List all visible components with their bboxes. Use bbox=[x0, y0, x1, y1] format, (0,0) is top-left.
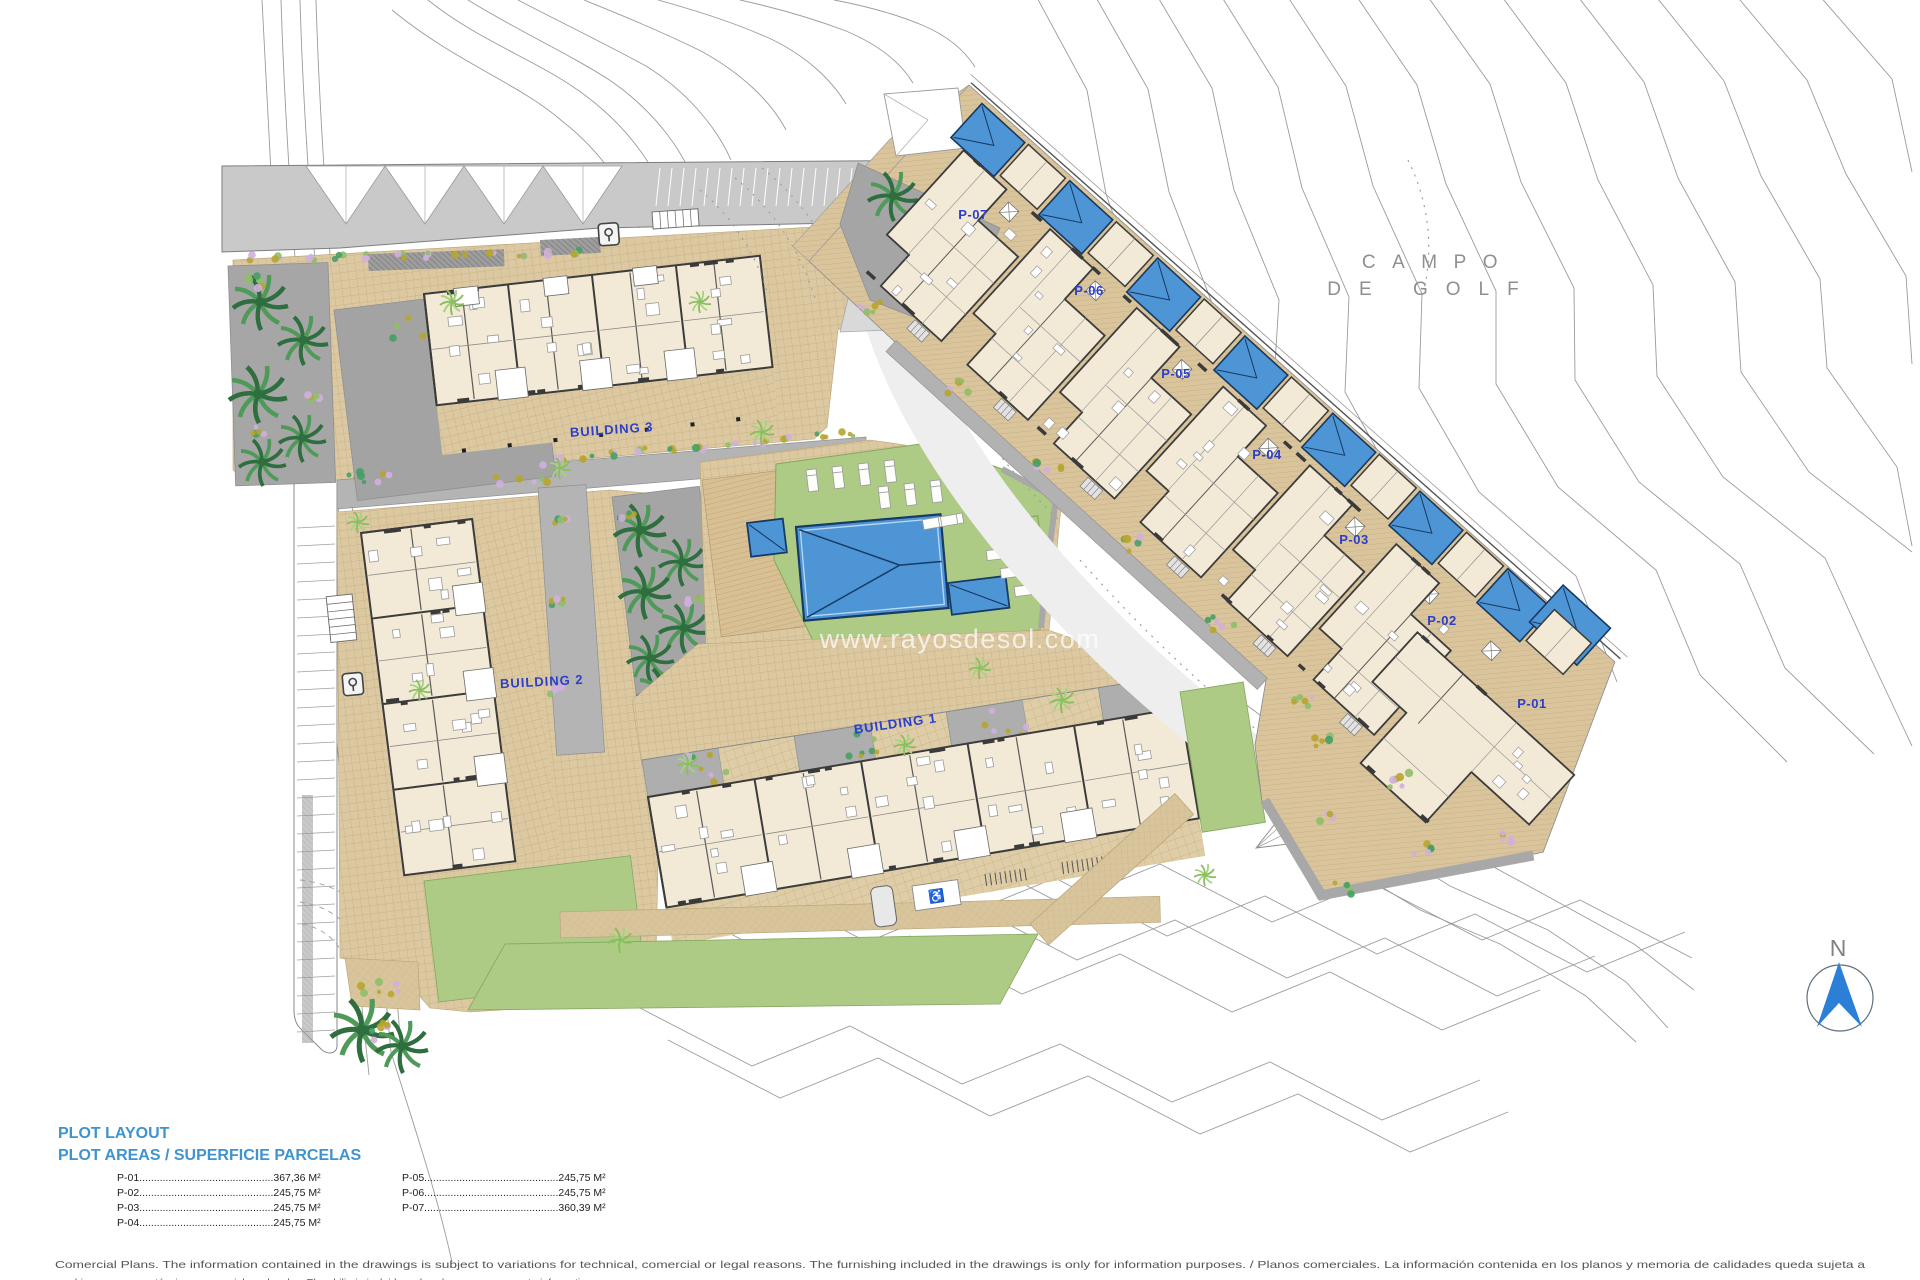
svg-text:PLOT AREAS / SUPERFICIE PARCEL: PLOT AREAS / SUPERFICIE PARCELAS bbox=[58, 1147, 361, 1164]
svg-text:N: N bbox=[1830, 935, 1847, 961]
svg-text:P-05..........................: P-05....................................… bbox=[402, 1172, 606, 1184]
svg-text:P-04: P-04 bbox=[1252, 447, 1282, 462]
svg-text:P-06..........................: P-06....................................… bbox=[402, 1187, 606, 1199]
svg-text:P-02: P-02 bbox=[1427, 613, 1456, 628]
svg-text:P-04..........................: P-04....................................… bbox=[117, 1217, 321, 1229]
svg-text:CAMPO: CAMPO bbox=[1362, 252, 1514, 273]
svg-text:www.rayosdesol.com: www.rayosdesol.com bbox=[819, 624, 1101, 654]
svg-text:P-07..........................: P-07....................................… bbox=[402, 1202, 606, 1214]
svg-text:P-01..........................: P-01....................................… bbox=[117, 1172, 321, 1184]
svg-text:♿: ♿ bbox=[928, 888, 946, 905]
svg-text:P-05: P-05 bbox=[1161, 366, 1190, 381]
svg-text:P-07: P-07 bbox=[958, 207, 987, 222]
svg-text:P-06: P-06 bbox=[1074, 283, 1103, 298]
svg-text:DE GOLF: DE GOLF bbox=[1327, 279, 1536, 300]
svg-text:P-03: P-03 bbox=[1339, 532, 1368, 547]
svg-text:P-01: P-01 bbox=[1517, 696, 1546, 711]
svg-text:Comercial Plans. The informati: Comercial Plans. The information contain… bbox=[55, 1259, 1865, 1271]
svg-text:PLOT LAYOUT: PLOT LAYOUT bbox=[58, 1125, 170, 1142]
svg-text:P-02..........................: P-02....................................… bbox=[117, 1187, 321, 1199]
svg-text:P-03..........................: P-03....................................… bbox=[117, 1202, 321, 1214]
